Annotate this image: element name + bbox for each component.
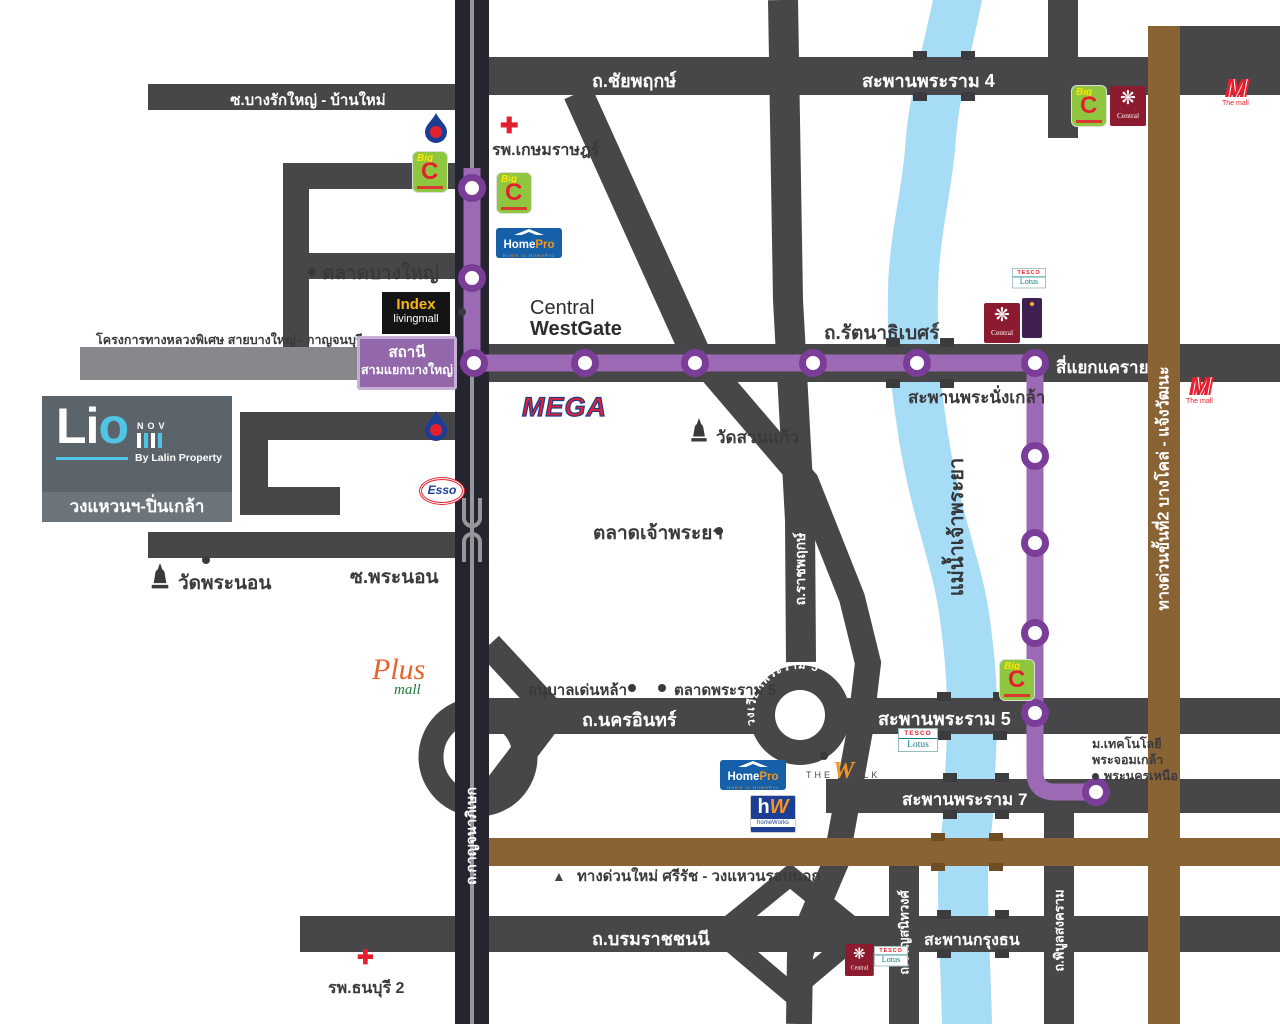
hospital-cross-icon: ✚ — [357, 948, 374, 968]
place-label-bang-yai-market: ตลาดบางใหญ่ — [322, 258, 439, 288]
series-text: NOV — [137, 421, 169, 431]
poi-dot — [1092, 773, 1099, 780]
mega-logo: MEGA — [522, 392, 607, 423]
mrt-station — [1025, 703, 1046, 724]
road-label-new-expressway: ▲ ทางด่วนใหม่ ศรีรัช - วงแหวนรอบนอก — [552, 864, 820, 888]
road-label-soi-phra-non: ซ.พระนอน — [350, 562, 439, 592]
tesco-lotus-logo: TESCO Lotus — [898, 728, 938, 752]
tesco-lotus-logo: TESCO Lotus — [874, 946, 908, 966]
place-label-chao-phraya-market: ตลาดเจ้าพระยา — [593, 518, 723, 548]
place-label-central-westgate: Central WestGate — [530, 298, 622, 340]
mrt-station-label-box: สถานี สามแยกบางใหญ่ — [357, 336, 457, 390]
central-logo: ❋ Central — [845, 944, 874, 976]
mrt-station — [575, 353, 596, 374]
bridge-label-rama4: สะพานพระราม 4 — [862, 66, 995, 95]
ptt-station-icon — [424, 112, 448, 144]
byline-text: By Lalin Property — [135, 452, 222, 464]
river-label-chao-phraya: แม่น้ำเจ้าพระยา — [940, 447, 972, 607]
mrt-station — [803, 353, 824, 374]
mrt-station — [907, 353, 928, 374]
road-label-ratchaphruek: ถ.ราชพฤกษ์ — [790, 499, 812, 639]
bigc-logo: BigC — [1072, 86, 1106, 126]
road-label-charansanitwong: ถ.จรัญสนิทวงศ์ — [894, 873, 915, 993]
road-label-borommaratchachonnani: ถ.บรมราชชนนี — [592, 924, 710, 953]
place-label-thonburi2-hospital: รพ.ธนบุรี 2 — [328, 976, 404, 1001]
project-location-text: วงแหวนฯ-ปิ่นเกล้า — [42, 492, 232, 522]
poi-dot — [308, 268, 316, 276]
the-walk-logo: THEWALK — [806, 758, 880, 785]
road-label-kanchanaphisek: ถ.กาญจนาภิเษก — [461, 756, 483, 916]
esso-logo: Esso — [419, 477, 465, 505]
bigc-logo: BigC — [413, 152, 447, 192]
plus-mall-logo: Plus mall — [372, 656, 425, 696]
mrt-station — [1086, 782, 1107, 803]
bridge-label-krung-thon: สะพานกรุงธน — [924, 928, 1020, 953]
place-label-rama5-market: ตลาดพระราม 5 — [674, 678, 776, 702]
junction-label-khae-rai: สี่แยกแคราย — [1056, 354, 1149, 381]
mrt-station — [462, 178, 483, 199]
mrt-station — [1025, 446, 1046, 467]
rama5-roundabout: วงเวียนพระราม 5 — [745, 660, 850, 765]
poi-dot — [202, 556, 210, 564]
central-flower-icon: ❋ — [845, 944, 874, 965]
central-flower-icon: ❋ — [984, 303, 1020, 329]
lio-project-logo: Lio NOV By Lalin Property วงแหวนฯ-ปิ่นเก… — [42, 396, 232, 522]
mrt-station — [462, 268, 483, 289]
location-map: วงเวียนพระราม 5 — [0, 0, 1280, 1024]
road-soi-phra-non — [148, 532, 478, 558]
esplanade-logo — [1022, 298, 1042, 338]
place-label-wat-suan-kaew: วัดสวนแก้ว — [716, 424, 799, 451]
mrt-station — [1025, 353, 1046, 374]
road-label-bang-rak-yai: ซ.บางรักใหญ่ - บ้านใหม่ — [150, 88, 466, 112]
nov-bars-icon — [137, 433, 169, 448]
mrt-station — [685, 353, 706, 374]
poi-dot — [715, 527, 723, 535]
index-livingmall-logo: Index livingmall — [382, 292, 450, 334]
road-label-expressway2: ทางด่วนขั้นที่2 บางโคล่ - แจ้งวัฒนะ — [1152, 279, 1177, 699]
place-label-kasemrad-hospital: รพ.เกษมราษฎร์ — [492, 138, 599, 163]
homepro-logo: HomePro Home is HomePro — [496, 228, 562, 258]
temple-icon — [148, 563, 172, 594]
central-logo: ❋ Central — [1110, 86, 1146, 126]
tesco-lotus-logo: TESCO Lotus — [1012, 268, 1046, 288]
place-label-wat-phra-non: วัดพระนอน — [178, 568, 271, 598]
poi-dot — [658, 684, 666, 692]
bridge-label-phra-nangklao: สะพานพระนั่งเกล้า — [908, 384, 1045, 411]
ptt-station-icon — [424, 410, 448, 442]
mrt-station — [1025, 623, 1046, 644]
bigc-logo: BigC — [497, 173, 531, 213]
place-label-denla: อนุบาลเด่นหล้า — [528, 678, 627, 702]
mrt-station — [464, 353, 485, 374]
brand-text: Li — [56, 402, 98, 450]
homepro-logo: HomePro Home is HomePro — [720, 760, 786, 790]
road-label-motorway-project: โครงการทางหลวงพิเศษ สายบางใหญ่ - กาญจนบุ… — [96, 330, 385, 350]
central-logo: ❋ Central — [984, 303, 1020, 343]
triangle-up-icon: ▲ — [552, 868, 566, 884]
the-mall-logo: M The mall — [1186, 374, 1213, 405]
road-label-nakhon-in: ถ.นครอินทร์ — [582, 705, 677, 734]
road-borommaratchachonnani — [300, 916, 1280, 952]
road-label-chaiyaphruek: ถ.ชัยพฤกษ์ — [592, 66, 676, 95]
mrt-station — [1025, 533, 1046, 554]
the-mall-logo: M The mall — [1222, 76, 1249, 107]
poi-dot — [628, 684, 636, 692]
poi-dot — [458, 308, 466, 316]
place-label-kmutnb: ม.เทคโนโลยี พระจอมเกล้า พระนครเหนือ — [1092, 736, 1178, 784]
bridge-label-rama7: สะพานพระราม 7 — [902, 786, 1027, 813]
temple-icon — [688, 418, 710, 447]
bigc-logo: BigC — [1000, 660, 1034, 700]
central-flower-icon: ❋ — [1110, 86, 1146, 112]
road-label-phibunsongkhram: ถ.พิบูลสงคราม — [1049, 871, 1070, 991]
hospital-cross-icon: ✚ — [500, 115, 518, 137]
road-label-rattanathibet: ถ.รัตนาธิเบศร์ — [824, 318, 939, 348]
homeworks-logo: hW homeWorks — [750, 795, 796, 833]
